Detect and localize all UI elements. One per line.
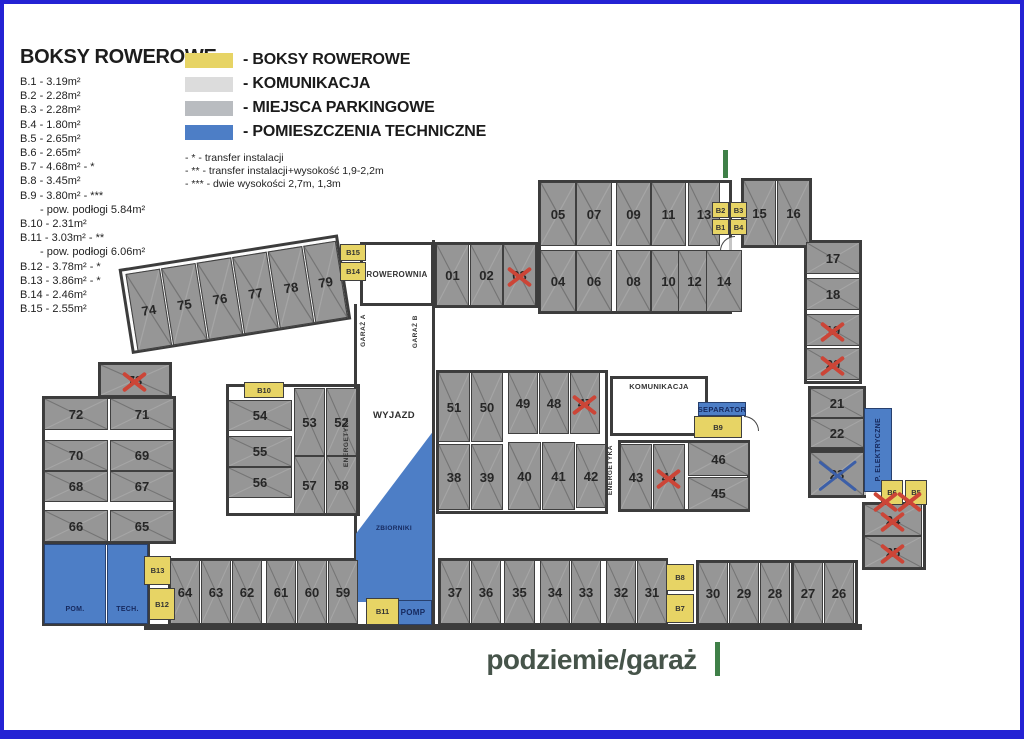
parking-spot-17: 17 (806, 242, 860, 274)
parking-spot-50: 50 (471, 372, 503, 442)
room-label: SEPARATOR (698, 405, 747, 414)
crossed-out-mark (873, 488, 899, 512)
parking-spot-number: 52 (334, 415, 348, 430)
parking-spot-number: 36 (479, 585, 493, 600)
parking-spot-number: 34 (548, 585, 562, 600)
bike-box-b13: B13 (144, 556, 171, 585)
parking-spot-16: 16 (777, 180, 810, 246)
room-zbiorniki: ZBIORNIKI (356, 422, 432, 602)
room-label: WYJAZD (373, 410, 415, 421)
door-arc (720, 236, 735, 251)
parking-spot-number: 68 (69, 479, 83, 494)
parking-spot-number: 01 (445, 268, 459, 283)
bike-box-b12: B12 (149, 588, 175, 620)
parking-spot-number: 27 (801, 586, 815, 601)
vertical-label-gara-a: GARAŻ A (356, 304, 370, 356)
parking-spot-number: 76 (212, 290, 229, 307)
parking-spot-number: 49 (516, 396, 530, 411)
parking-spot-47: 47 (570, 372, 600, 434)
room-label: ROWEROWNIA (366, 270, 427, 279)
room-tech-: TECH. (107, 544, 148, 624)
parking-spot-number: 41 (551, 469, 565, 484)
parking-spot-56: 56 (228, 467, 292, 498)
parking-spot-38: 38 (438, 444, 470, 510)
bike-box-b2: B2 (712, 202, 729, 218)
parking-spot-31: 31 (637, 560, 667, 624)
parking-spot-number: 32 (614, 585, 628, 600)
parking-spot-23: 23 (810, 452, 864, 496)
crossed-out-mark (820, 352, 846, 376)
parking-spot-number: 72 (69, 407, 83, 422)
room-pomp: POMP (394, 600, 432, 625)
parking-spot-number: 22 (830, 426, 844, 441)
green-tick (723, 150, 728, 178)
parking-spot-number: 09 (626, 207, 640, 222)
parking-spot-number: 65 (135, 519, 149, 534)
parking-spot-07: 07 (576, 182, 612, 246)
parking-spot-number: 04 (551, 274, 565, 289)
bike-box-label: B11 (376, 607, 389, 616)
parking-spot-number: 05 (551, 207, 565, 222)
crossed-out-mark (816, 456, 858, 491)
parking-spot-21: 21 (810, 388, 864, 418)
parking-spot-number: 48 (547, 396, 561, 411)
parking-spot-34: 34 (540, 560, 570, 624)
floor-plan: 747576777879 ROWEROWNIAWYJAZDZBIORNIKIPO… (4, 4, 1024, 739)
parking-spot-29: 29 (729, 562, 759, 624)
parking-spot-03: 03 (503, 244, 536, 306)
parking-spot-33: 33 (571, 560, 601, 624)
parking-spot-number: 53 (302, 415, 316, 430)
parking-spot-42: 42 (576, 444, 606, 508)
parking-spot-number: 29 (737, 586, 751, 601)
green-tick (715, 642, 720, 676)
parking-spot-number: 60 (305, 585, 319, 600)
parking-spot-22: 22 (810, 418, 864, 448)
door-arc (744, 416, 759, 431)
parking-spot-number: 26 (832, 586, 846, 601)
parking-spot-number: 55 (253, 444, 267, 459)
parking-spot-08: 08 (616, 250, 651, 312)
scanned-floor-plan-page: BOKSY ROWEROWE B.1 - 3.19m²B.2 - 2.28m²B… (0, 0, 1024, 739)
parking-spot-48: 48 (539, 372, 569, 434)
parking-spot-number: 11 (662, 207, 676, 222)
bike-box-b7: B7 (666, 594, 694, 623)
parking-spot-number: 59 (336, 585, 350, 600)
parking-spot-04: 04 (540, 250, 576, 312)
bike-box-b3: B3 (730, 202, 747, 218)
parking-spot-53: 53 (294, 388, 325, 456)
room-label: TECH. (116, 606, 139, 613)
parking-spot-11: 11 (651, 182, 686, 246)
parking-spot-02: 02 (470, 244, 503, 306)
bike-box-b4: B4 (730, 219, 747, 235)
bike-box-b9: B9 (694, 416, 742, 438)
bike-box-label: B10 (257, 386, 271, 395)
room-label: POMP (401, 608, 426, 617)
parking-spot-number: 54 (253, 408, 267, 423)
vertical-label-text: GARAŻ B (412, 315, 419, 348)
parking-spot-66: 66 (44, 510, 108, 542)
parking-spot-14: 14 (706, 250, 742, 312)
parking-spot-28: 28 (760, 562, 790, 624)
parking-spot-number: 62 (240, 585, 254, 600)
room-pom-: POM. (44, 544, 106, 624)
parking-spot-37: 37 (440, 560, 470, 624)
parking-spot-number: 51 (447, 400, 461, 415)
parking-spot-51: 51 (438, 372, 470, 442)
crossed-out-mark (900, 492, 920, 508)
parking-spot-19: 19 (806, 314, 860, 346)
parking-spot-65: 65 (110, 510, 174, 542)
bike-box-b11: B11 (366, 598, 399, 625)
parking-spot-number: 43 (629, 470, 643, 485)
parking-spot-67: 67 (110, 471, 174, 502)
parking-spot-number: 79 (317, 273, 334, 290)
bike-box-label: B2 (716, 206, 726, 215)
parking-spot-number: 17 (826, 251, 840, 266)
bike-box-b10: B10 (244, 382, 284, 398)
parking-spot-number: 56 (253, 475, 267, 490)
parking-spot-71: 71 (110, 398, 174, 430)
room-rowerownia: ROWEROWNIA (360, 242, 434, 306)
vertical-label-gara-b: GARAŻ B (408, 306, 422, 358)
parking-spot-57: 57 (294, 456, 325, 514)
vertical-label-energetyka: ENERGETYKA (605, 442, 615, 498)
bike-box-label: B3 (734, 206, 744, 215)
parking-spot-46: 46 (688, 442, 749, 476)
parking-spot-number: 13 (697, 207, 711, 222)
parking-spot-number: 28 (768, 586, 782, 601)
parking-spot-35: 35 (504, 560, 535, 624)
parking-spot-44: 44 (653, 444, 685, 510)
parking-spot-25: 25 (864, 536, 922, 568)
parking-spot-number: 74 (140, 301, 157, 318)
parking-spot-61: 61 (266, 560, 296, 624)
parking-spot-number: 39 (480, 470, 494, 485)
parking-spot-number: 45 (711, 486, 725, 501)
parking-spot-49: 49 (508, 372, 538, 434)
room-wyjazd: WYJAZD (362, 404, 426, 426)
parking-spot-36: 36 (471, 560, 501, 624)
room-label: P. ELEKTRYCZNE (875, 418, 882, 481)
parking-spot-number: 10 (661, 274, 675, 289)
parking-spot-number: 37 (448, 585, 462, 600)
parking-spot-15: 15 (743, 180, 776, 246)
bike-box-label: B12 (155, 600, 169, 609)
parking-spot-number: 14 (717, 274, 731, 289)
parking-spot-number: 64 (178, 585, 192, 600)
parking-spot-41: 41 (542, 442, 575, 510)
bike-box-label: B7 (675, 604, 685, 613)
parking-spot-number: 06 (587, 274, 601, 289)
parking-spot-number: 50 (480, 400, 494, 415)
bike-box-b1: B1 (712, 219, 729, 235)
crossed-out-mark (122, 368, 148, 392)
crossed-out-mark (880, 540, 906, 564)
parking-spot-45: 45 (688, 477, 749, 510)
parking-spot-number: 75 (176, 296, 193, 313)
parking-spot-number: 46 (711, 452, 725, 467)
parking-spot-number: 77 (247, 284, 264, 301)
parking-spot-number: 40 (517, 469, 531, 484)
parking-spot-number: 31 (645, 585, 659, 600)
parking-spot-06: 06 (576, 250, 612, 312)
parking-spot-number: 18 (826, 287, 840, 302)
bike-box-label: B4 (734, 223, 744, 232)
crossed-out-mark (656, 465, 682, 489)
floor-title: podziemie/garaż (474, 644, 709, 676)
parking-spot-number: 78 (283, 279, 300, 296)
wall (144, 624, 862, 630)
vertical-label-text: ENERGETYKA (607, 445, 614, 495)
parking-spot-39: 39 (471, 444, 503, 510)
bike-box-label: B14 (346, 267, 360, 276)
bike-box-label: B15 (346, 248, 360, 257)
bike-box-b8: B8 (666, 564, 694, 591)
bike-box-label: B9 (713, 423, 723, 432)
parking-spot-62: 62 (232, 560, 262, 624)
parking-spot-68: 68 (44, 471, 108, 502)
parking-spot-18: 18 (806, 278, 860, 310)
parking-spot-number: 61 (274, 585, 288, 600)
parking-spot-32: 32 (606, 560, 636, 624)
parking-spot-number: 02 (479, 268, 493, 283)
parking-spot-43: 43 (620, 444, 652, 510)
crossed-out-mark (820, 318, 846, 342)
bike-box-label: B13 (151, 566, 165, 575)
parking-spot-54: 54 (228, 400, 292, 431)
parking-spot-number: 66 (69, 519, 83, 534)
parking-spot-05: 05 (540, 182, 576, 246)
parking-spot-72: 72 (44, 398, 108, 430)
parking-spot-number: 21 (830, 396, 844, 411)
parking-spot-number: 38 (447, 470, 461, 485)
room-label: ZBIORNIKI (376, 525, 412, 532)
parking-spot-number: 12 (687, 274, 701, 289)
parking-spot-number: 42 (584, 469, 598, 484)
vertical-label-text: GARAŻ A (360, 314, 367, 347)
parking-spot-number: 71 (135, 407, 149, 422)
parking-spot-number: 58 (334, 478, 348, 493)
parking-spot-73: 73 (100, 364, 170, 396)
parking-spot-59: 59 (328, 560, 358, 624)
bike-box-label: B1 (716, 223, 726, 232)
parking-spot-69: 69 (110, 440, 174, 471)
parking-spot-number: 69 (135, 448, 149, 463)
parking-spot-number: 30 (706, 586, 720, 601)
parking-spot-number: 35 (512, 585, 526, 600)
parking-spot-number: 16 (786, 206, 800, 221)
parking-spot-09: 09 (616, 182, 651, 246)
parking-spot-70: 70 (44, 440, 108, 471)
parking-spot-60: 60 (297, 560, 327, 624)
room-label: KOMUNIKACJA (629, 382, 689, 391)
parking-spot-26: 26 (824, 562, 854, 624)
parking-spot-20: 20 (806, 348, 860, 380)
bike-box-b15: B15 (340, 244, 366, 261)
parking-spot-55: 55 (228, 436, 292, 467)
parking-spot-number: 33 (579, 585, 593, 600)
parking-spot-number: 08 (626, 274, 640, 289)
bike-box-b14: B14 (340, 262, 366, 281)
parking-spot-30: 30 (698, 562, 728, 624)
parking-spot-number: 67 (135, 479, 149, 494)
parking-spot-number: 07 (587, 207, 601, 222)
parking-spot-number: 15 (752, 206, 766, 221)
slanted-parking-row: 747576777879 (119, 234, 352, 354)
parking-spot-27: 27 (793, 562, 823, 624)
room-separator: SEPARATOR (698, 402, 746, 416)
crossed-out-mark (572, 391, 598, 415)
parking-spot-40: 40 (508, 442, 541, 510)
crossed-out-mark (507, 263, 533, 287)
bike-box-label: B8 (675, 573, 685, 582)
crossed-out-mark (897, 488, 923, 512)
parking-spot-number: 57 (302, 478, 316, 493)
parking-spot-63: 63 (201, 560, 231, 624)
crossed-out-mark (876, 492, 896, 508)
parking-spot-number: 70 (69, 448, 83, 463)
parking-spot-number: 63 (209, 585, 223, 600)
parking-spot-01: 01 (436, 244, 469, 306)
room-label: POM. (65, 606, 84, 613)
